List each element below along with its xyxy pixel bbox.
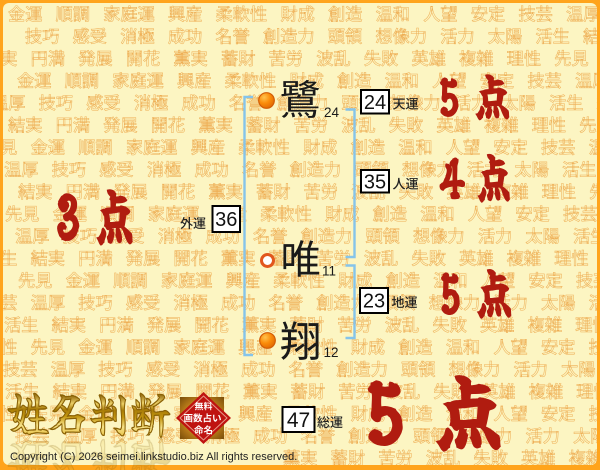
svg-text:24: 24 — [364, 92, 386, 114]
svg-text:36: 36 — [215, 209, 237, 231]
svg-text:24: 24 — [324, 105, 340, 120]
svg-text:35: 35 — [364, 171, 386, 193]
svg-text:11: 11 — [322, 264, 336, 279]
svg-text:Copyright (C) 2026 seimei.link: Copyright (C) 2026 seimei.linkstudio.biz… — [10, 451, 297, 463]
svg-text:23: 23 — [363, 291, 385, 313]
svg-text:12: 12 — [324, 345, 339, 360]
svg-text:47: 47 — [287, 409, 310, 432]
